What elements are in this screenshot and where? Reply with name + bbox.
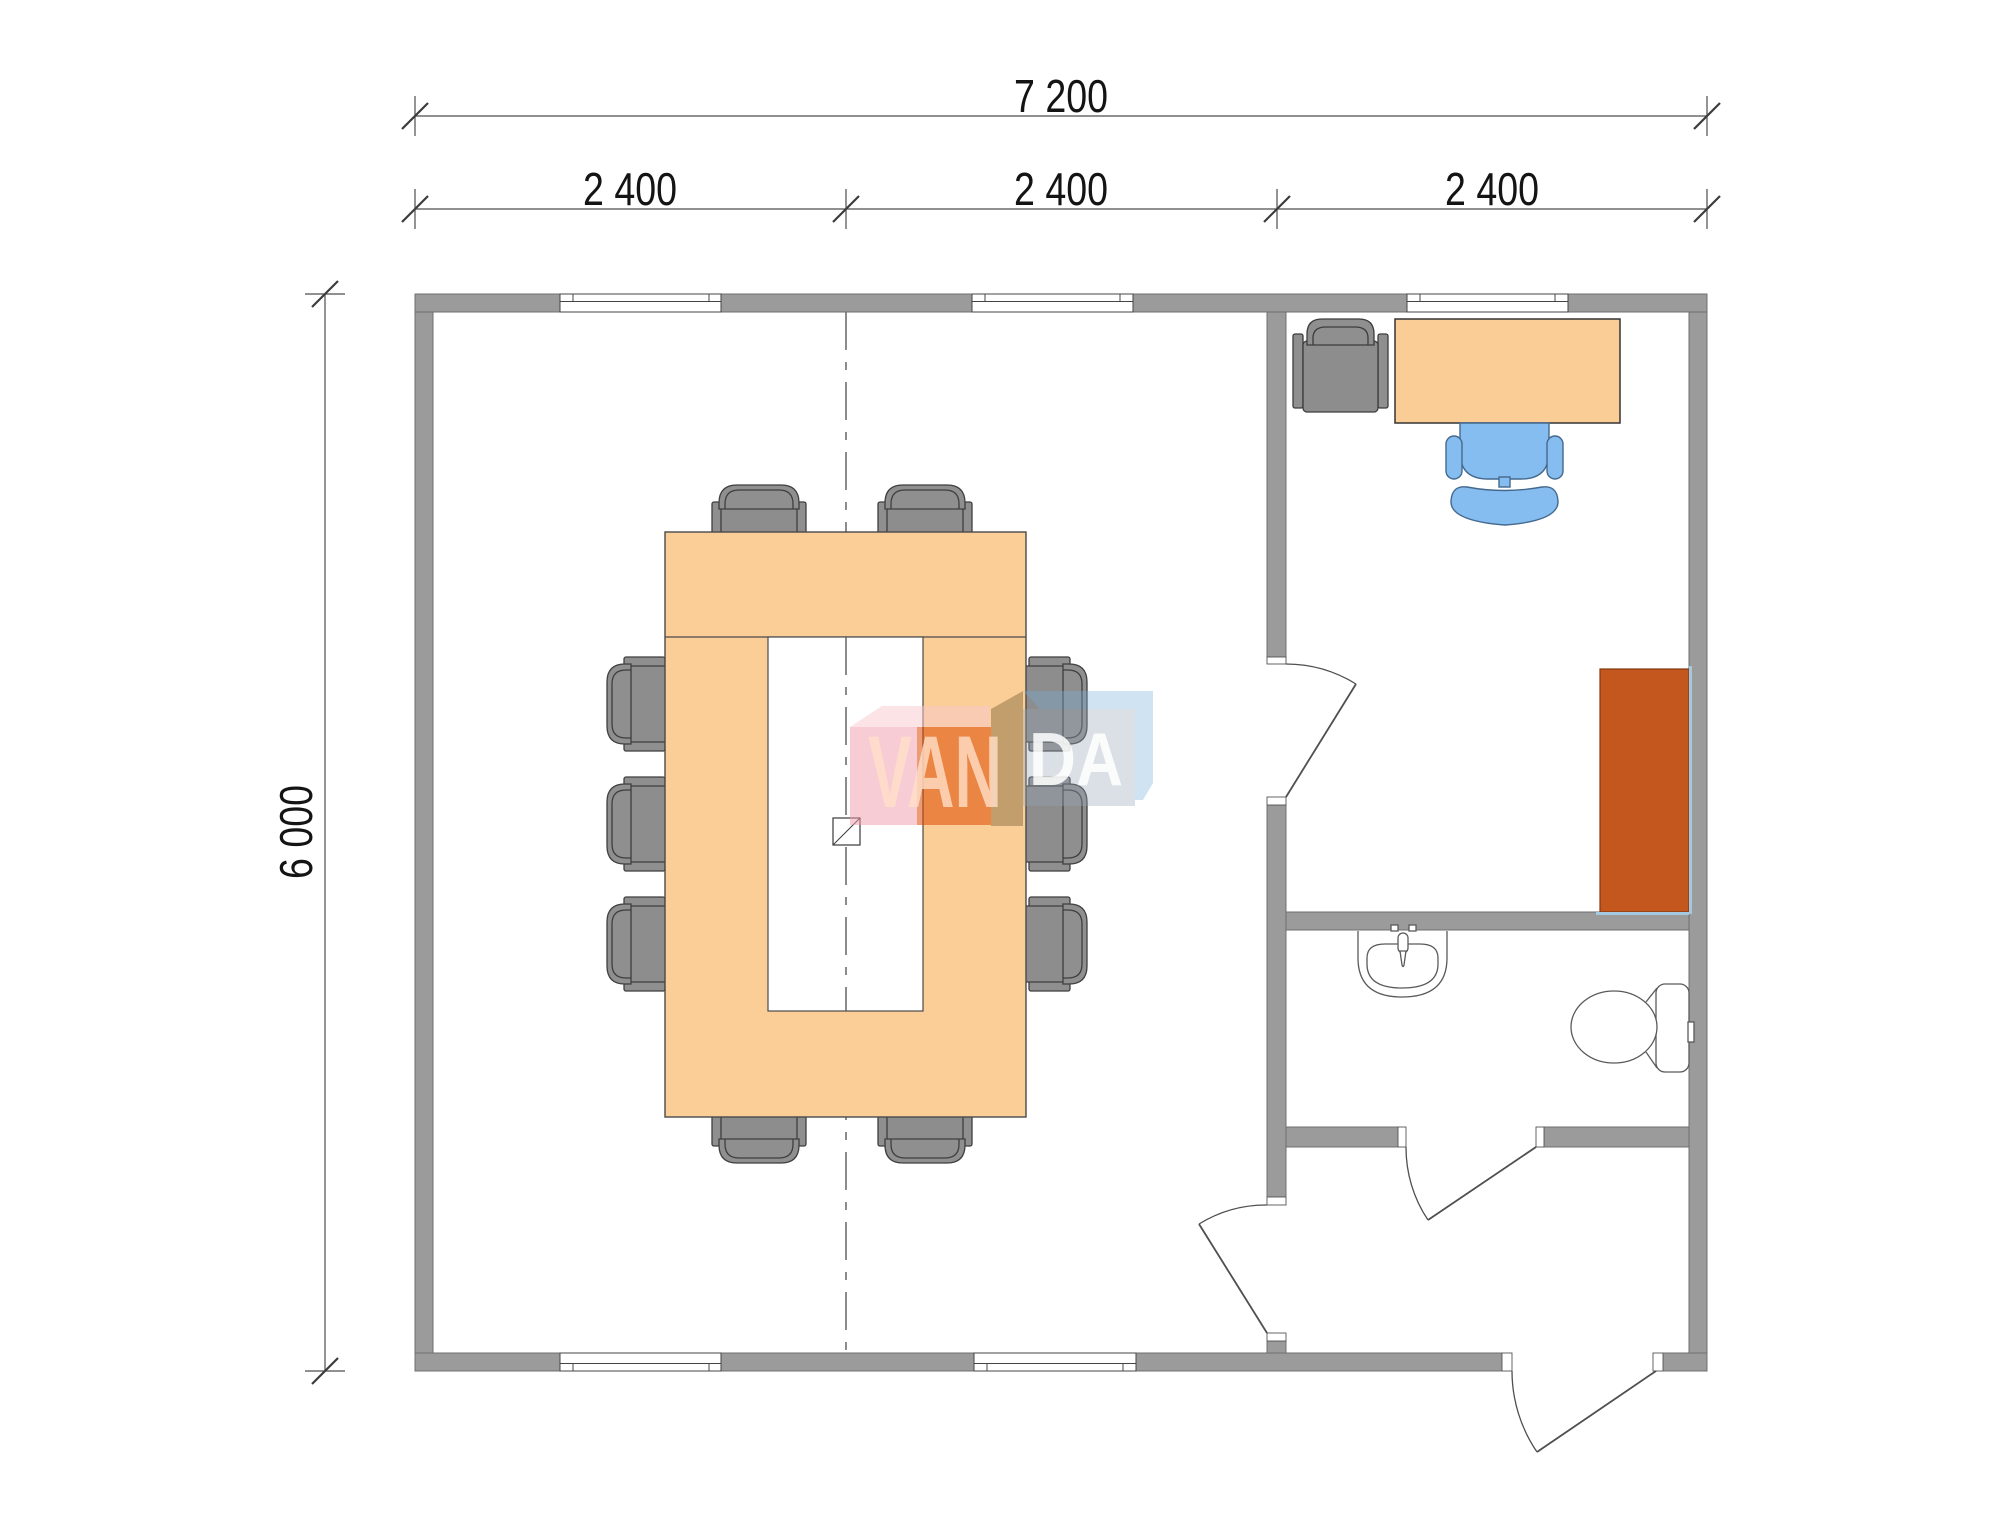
svg-text:6 000: 6 000: [270, 785, 322, 879]
svg-text:DA: DA: [1029, 717, 1123, 801]
svg-text:2 400: 2 400: [1014, 163, 1108, 215]
svg-text:2 400: 2 400: [583, 163, 677, 215]
svg-text:VAN: VAN: [868, 715, 1002, 829]
svg-text:2 400: 2 400: [1445, 163, 1539, 215]
svg-text:7 200: 7 200: [1014, 70, 1108, 122]
